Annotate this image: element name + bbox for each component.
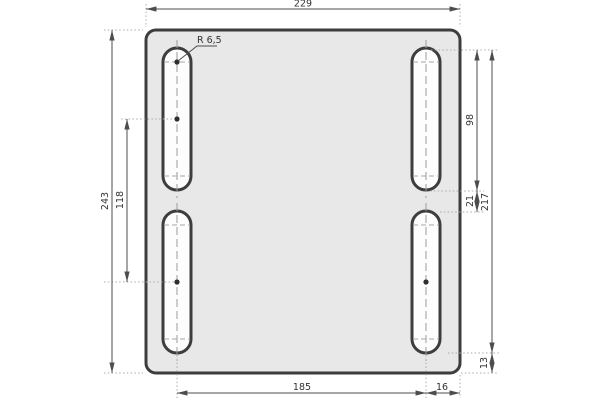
dimension-slots-total-extent: 217 <box>480 50 492 353</box>
dimension-slot-length: 98 <box>465 50 477 191</box>
dimension-overall-width: 229 <box>146 0 460 10</box>
dim-label-slot-horizontal-spacing: 185 <box>293 382 311 393</box>
dim-label-slot-length: 98 <box>465 114 476 126</box>
slot-center-point-bottom-right <box>423 279 428 284</box>
dimension-overall-height: 243 <box>100 30 112 373</box>
dim-label-slot-end-radius: R 6,5 <box>197 35 222 46</box>
dimension-slot-vertical-gap: 21 <box>465 191 477 212</box>
dimension-left-slot-center-spacing: 118 <box>115 119 127 282</box>
technical-drawing: 229 243 118 98 21 217 13 185 <box>0 0 600 400</box>
dimension-slot-horizontal-spacing: 185 <box>177 382 426 393</box>
dim-label-left-slot-center-spacing: 118 <box>115 191 126 209</box>
dim-label-bottom-edge-offset: 13 <box>479 357 490 369</box>
dimension-bottom-edge-offset: 13 <box>479 353 492 373</box>
dimension-right-edge-offset: 16 <box>426 382 460 393</box>
dim-label-slot-vertical-gap: 21 <box>465 195 476 207</box>
dim-label-slots-total-extent: 217 <box>480 193 491 211</box>
slot-center-point-bottom-left <box>174 279 179 284</box>
slot-center-point-top-left <box>174 116 179 121</box>
dim-label-right-edge-offset: 16 <box>436 382 448 393</box>
dim-label-overall-width: 229 <box>294 0 312 10</box>
drawing-canvas: 229 243 118 98 21 217 13 185 <box>0 0 600 400</box>
dim-label-overall-height: 243 <box>100 192 111 210</box>
